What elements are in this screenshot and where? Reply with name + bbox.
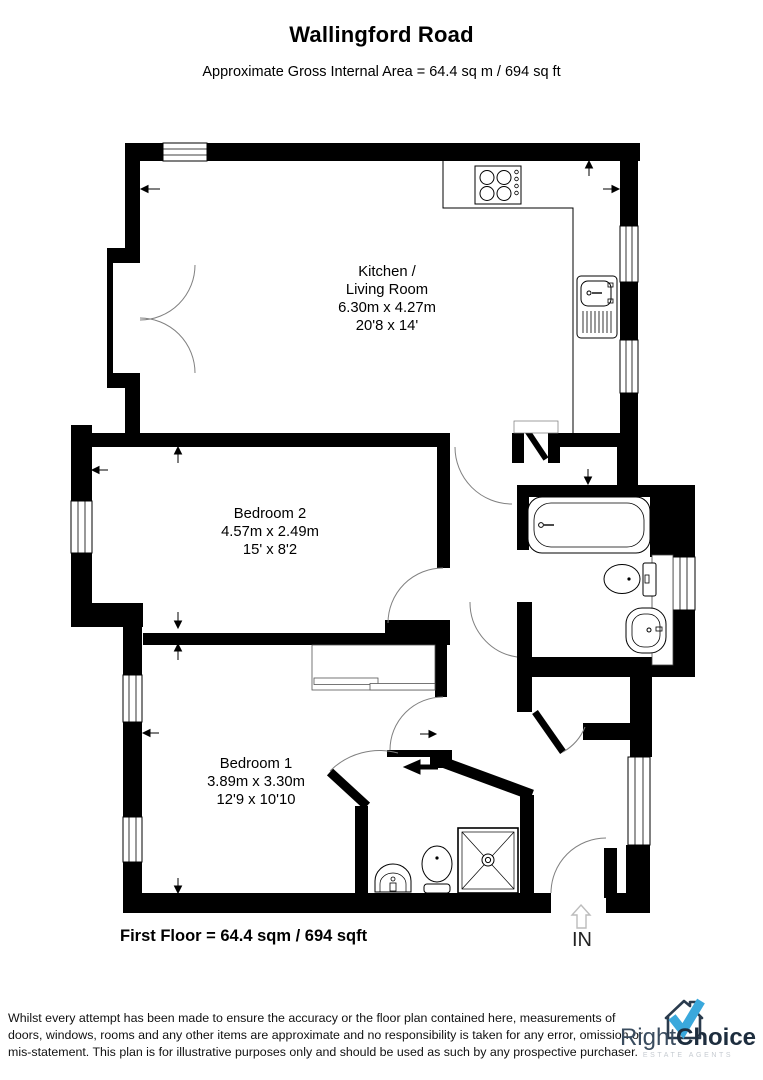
french-door-arc [140, 265, 195, 320]
toilet-icon [604, 563, 656, 596]
room-dimensions-metric: 6.30m x 4.27m [287, 299, 487, 317]
page-title: Wallingford Road [0, 22, 763, 48]
disclaimer-line: mis-statement. This plan is for illustra… [8, 1044, 628, 1061]
room-name: Living Room [287, 281, 487, 299]
bedroom2-door-arc [388, 568, 443, 623]
logo-brand-part1: Right [620, 1024, 676, 1051]
room-label-bedroom1: Bedroom 1 3.89m x 3.30m 12'9 x 10'10 [156, 755, 356, 809]
shower-icon [458, 828, 518, 893]
window-icon [620, 340, 638, 393]
kitchen-sink-icon [577, 276, 617, 338]
disclaimer: Whilst every attempt has been made to en… [8, 1010, 628, 1061]
shower-room-door-arc [390, 697, 443, 750]
room-dimensions-imperial: 20'8 x 14' [287, 317, 487, 335]
closet-recess [514, 421, 558, 433]
toilet-ensuite-icon [422, 846, 452, 893]
entrance-label: IN [560, 929, 604, 952]
hob-icon [475, 166, 521, 204]
wash-basin-ensuite-icon [375, 864, 411, 892]
room-dimensions-imperial: 12'9 x 10'10 [156, 791, 356, 809]
window-icon [620, 226, 638, 282]
entrance-in-arrow-icon [572, 905, 590, 928]
disclaimer-line: doors, windows, rooms and any other item… [8, 1027, 628, 1044]
room-name: Bedroom 1 [156, 755, 356, 773]
window-icon [163, 143, 207, 161]
floorplan-page: { "header": { "title": "Wallingford Road… [0, 0, 763, 1080]
window-icon [123, 817, 142, 862]
bathtub-icon [528, 497, 650, 553]
living-door-arc [455, 447, 512, 504]
page-subtitle: Approximate Gross Internal Area = 64.4 s… [0, 64, 763, 80]
wardrobe-icon [312, 645, 435, 690]
vestibule-door-arc [563, 727, 585, 752]
room-dimensions-imperial: 15' x 8'2 [170, 541, 370, 559]
wash-basin-icon [626, 608, 666, 653]
window-icon [628, 757, 650, 845]
room-dimensions-metric: 3.89m x 3.30m [156, 773, 356, 791]
french-door-arc [140, 318, 195, 373]
floor-summary: First Floor = 64.4 sqm / 694 sqft [120, 927, 367, 946]
logo-tagline: ESTATE AGENTS [613, 1052, 763, 1059]
room-name: Bedroom 2 [170, 505, 370, 523]
floorplan-svg [0, 0, 763, 1080]
window-icon [123, 675, 142, 722]
room-dimensions-metric: 4.57m x 2.49m [170, 523, 370, 541]
logo-brand-part2: Choice [676, 1024, 756, 1051]
room-name: Kitchen / [287, 263, 487, 281]
disclaimer-line: Whilst every attempt has been made to en… [8, 1010, 628, 1027]
window-icon [71, 501, 92, 553]
logo-brand-text: RightChoice [613, 1026, 763, 1050]
room-label-bedroom2: Bedroom 2 4.57m x 2.49m 15' x 8'2 [170, 505, 370, 559]
entrance-door-arc [551, 838, 606, 893]
window-icon [673, 557, 695, 610]
bathroom-door-arc [470, 602, 517, 657]
room-label-kitchen-living: Kitchen / Living Room 6.30m x 4.27m 20'8… [287, 263, 487, 335]
